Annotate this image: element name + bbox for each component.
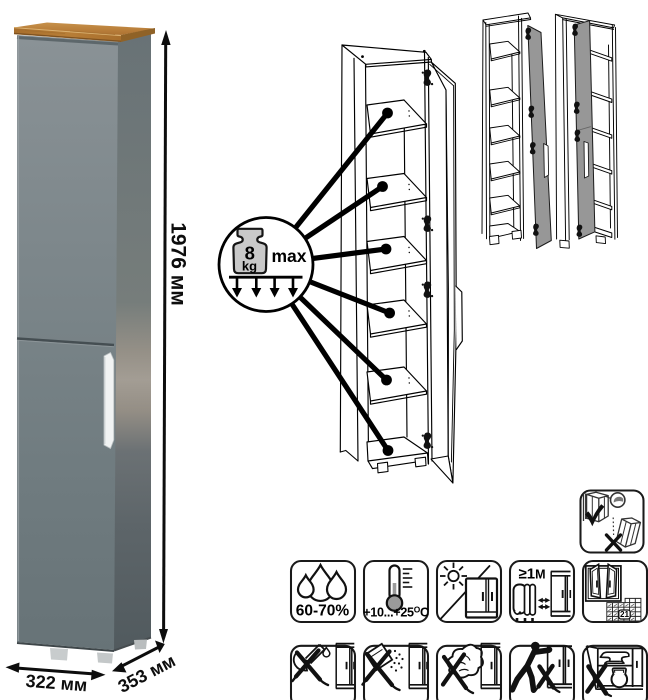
svg-text:21: 21 <box>620 610 630 619</box>
svg-text:1976 мм: 1976 мм <box>167 222 190 306</box>
svg-text:≥1М: ≥1М <box>519 566 546 583</box>
svg-text:+10...+25OC: +10...+25OC <box>363 605 429 620</box>
svg-text:kg: kg <box>242 259 257 274</box>
svg-text:60-70%: 60-70% <box>296 603 350 620</box>
svg-text:max: max <box>272 246 307 266</box>
